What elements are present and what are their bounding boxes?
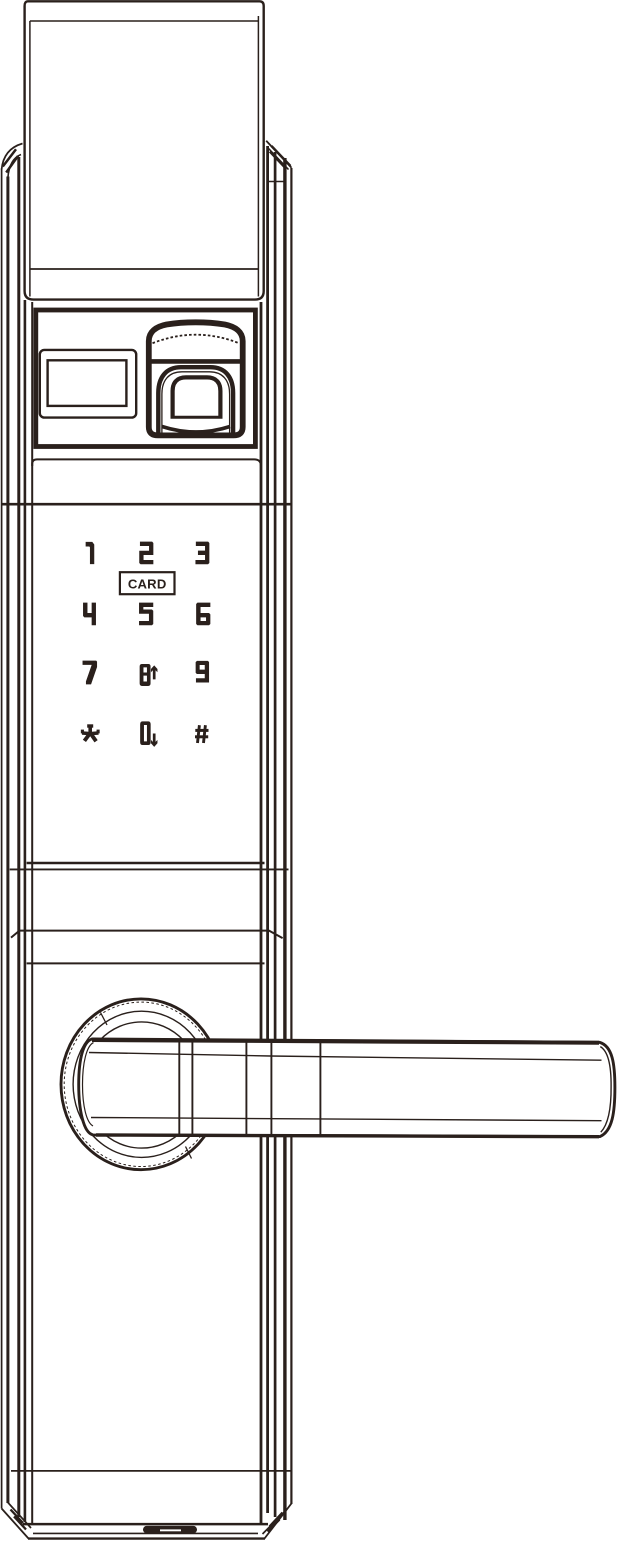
svg-text:CARD: CARD bbox=[128, 576, 167, 591]
